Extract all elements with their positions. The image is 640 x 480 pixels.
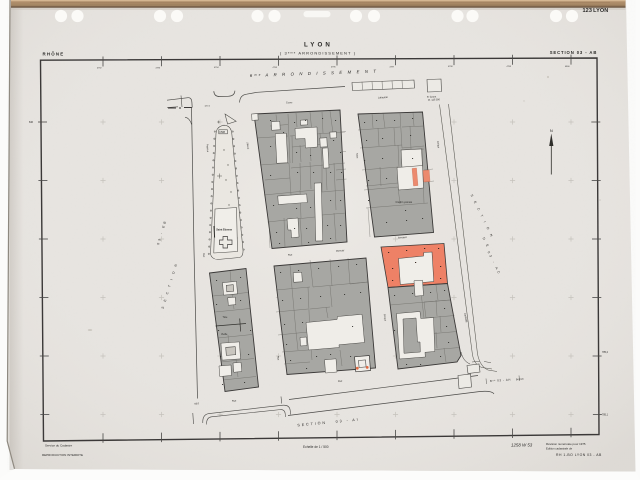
svg-text:Révision numérotée pour 1975: Révision numérotée pour 1975: [546, 442, 586, 446]
svg-text:785,2: 785,2: [602, 351, 609, 354]
svg-text:M. 125 300: M. 125 300: [428, 98, 441, 102]
svg-text:( 3ᵉᵐᵉ ARRONDISSEMENT ): ( 3ᵉᵐᵉ ARRONDISSEMENT ): [280, 50, 356, 55]
svg-text:REPRODUCTION INTERDITE: REPRODUCTION INTERDITE: [42, 453, 83, 457]
svg-text:Tête: Tête: [223, 316, 228, 319]
svg-text:SECTION 03 - AB: SECTION 03 - AB: [550, 50, 598, 55]
svg-text:Saint Etienne: Saint Etienne: [216, 228, 232, 231]
svg-text:123 LYON: 123 LYON: [583, 8, 609, 14]
svg-text:Liberté: Liberté: [246, 142, 250, 150]
svg-text:Edition cadastrale de: Edition cadastrale de: [546, 447, 573, 451]
svg-text:Pasteur: Pasteur: [206, 144, 210, 153]
svg-text:C588: C588: [219, 131, 225, 134]
svg-text:Servient: Servient: [398, 236, 407, 240]
svg-text:RH 1-BO LYON 03 - AB: RH 1-BO LYON 03 - AB: [556, 453, 602, 457]
svg-text:Crédit Lyonnais: Crédit Lyonnais: [396, 201, 413, 204]
svg-text:Bonnel: Bonnel: [516, 378, 524, 382]
svg-text:RHÔNE: RHÔNE: [43, 52, 65, 57]
svg-text:Saxe: Saxe: [355, 153, 359, 159]
svg-text:100 m: 100 m: [204, 105, 210, 107]
svg-text:846: 846: [29, 121, 34, 124]
svg-text:Vieille: Vieille: [221, 333, 228, 336]
svg-text:Lafayette: Lafayette: [378, 96, 389, 99]
svg-text:LYON: LYON: [304, 42, 333, 49]
svg-text:785,1: 785,1: [602, 414, 609, 417]
svg-text:Service du Cadastre: Service du Cadastre: [45, 444, 73, 448]
svg-text:Echelle de 1 / 500: Echelle de 1 / 500: [303, 445, 329, 449]
svg-text:1258 W 53: 1258 W 53: [511, 443, 533, 448]
svg-text:Cours: Cours: [286, 101, 293, 104]
svg-text:N: N: [550, 128, 553, 133]
